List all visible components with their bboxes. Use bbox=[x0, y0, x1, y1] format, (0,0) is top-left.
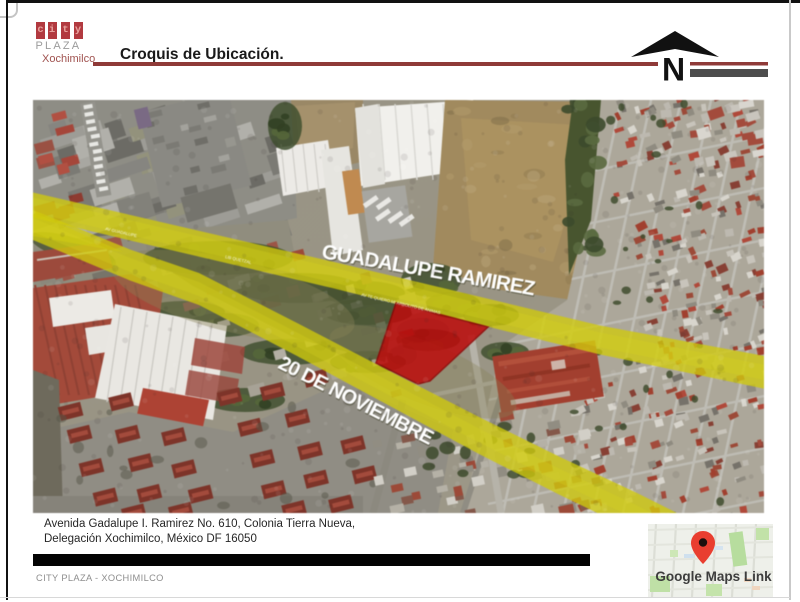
svg-text:N: N bbox=[662, 52, 685, 84]
